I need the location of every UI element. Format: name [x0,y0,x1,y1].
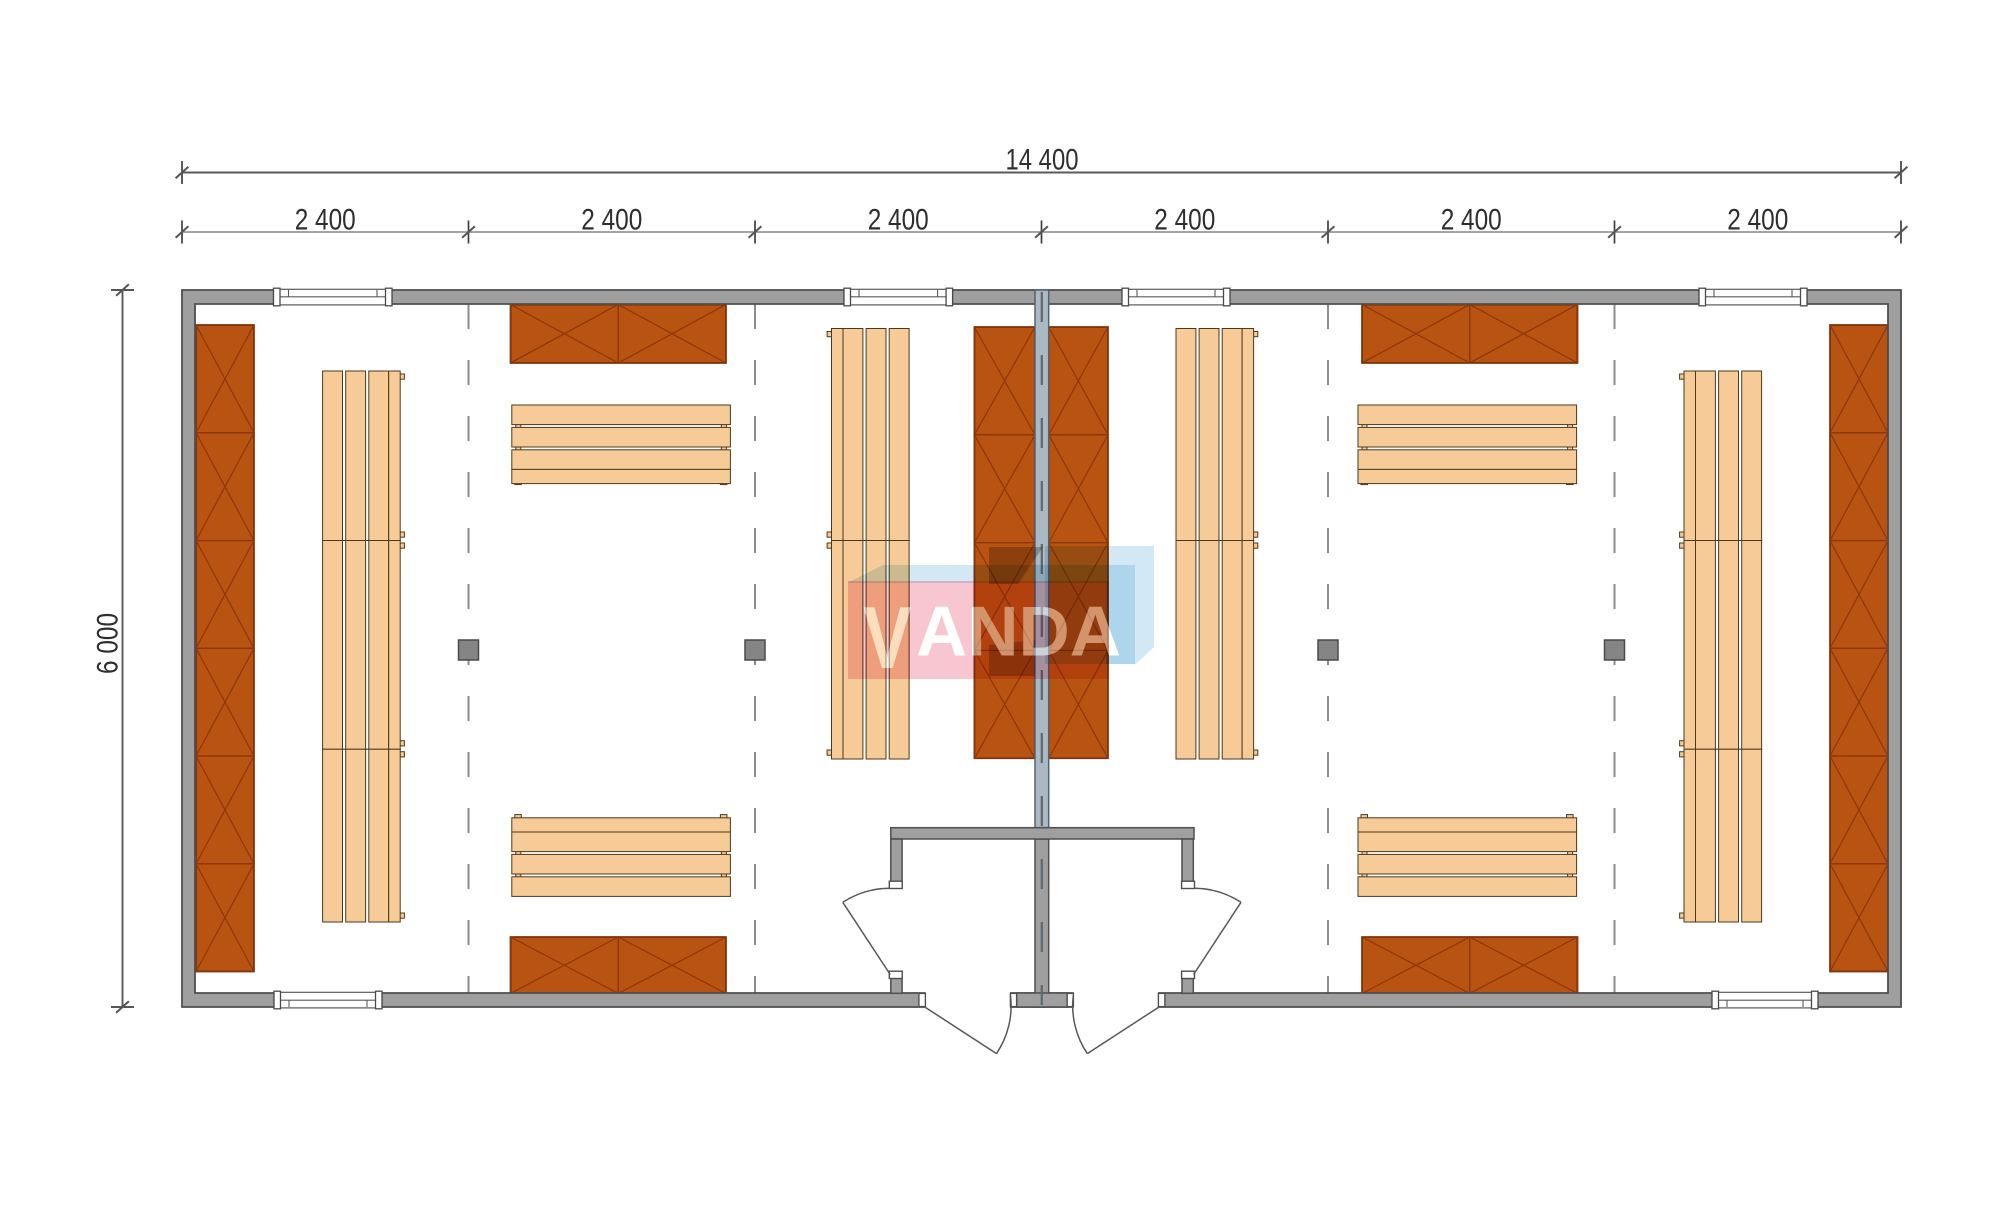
svg-text:2 400: 2 400 [868,204,929,237]
svg-text:2 400: 2 400 [1154,204,1215,237]
svg-text:14 400: 14 400 [1006,144,1079,177]
svg-text:2 400: 2 400 [1727,204,1788,237]
svg-text:2 400: 2 400 [581,204,642,237]
svg-text:6 000: 6 000 [92,613,125,674]
svg-text:2 400: 2 400 [295,204,356,237]
svg-text:2 400: 2 400 [1441,204,1502,237]
svg-text:V: V [863,588,912,687]
svg-text:ANDA: ANDA [916,592,1121,671]
